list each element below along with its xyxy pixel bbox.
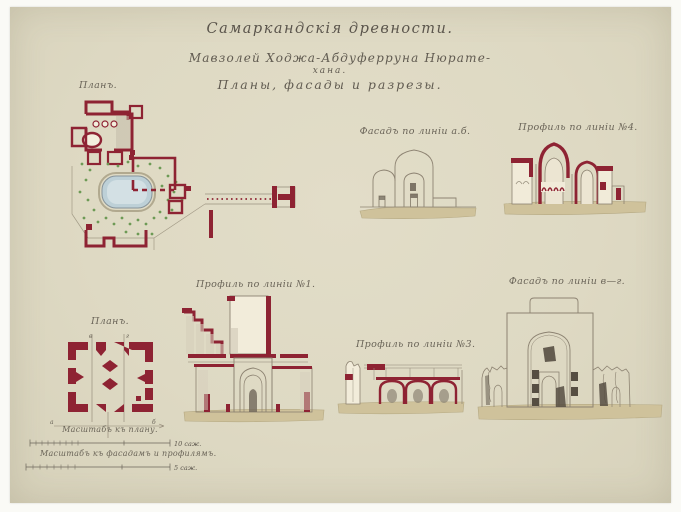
door-shadow (411, 194, 418, 198)
section-mark-v: в (89, 333, 93, 340)
section-mark-g: г (126, 333, 129, 340)
mausoleum-facade (360, 150, 476, 207)
site-plan-drawing (42, 88, 304, 253)
annex-dome-outline (373, 170, 395, 207)
baseline-mark-a: а (50, 419, 54, 426)
page-title: Самаркандскія древности. (190, 22, 470, 37)
door-opening (249, 389, 257, 412)
ground-band (360, 207, 476, 219)
facade-vg-caption: Фасадъ по линіи в—г. (502, 277, 632, 287)
mausoleum-complex-plan (72, 102, 142, 164)
corridor-plan (205, 194, 272, 204)
elevation-scale-unit: 5 саж. (174, 464, 197, 472)
page-subtitle: Мавзолей Ходжа-Абдуферруна Нюрате- (170, 52, 510, 64)
profile-4-caption: Профиль по линіи №4. (508, 123, 648, 133)
elevation-scale-caption: Масштабъ къ фасадамъ и профилямъ. (40, 450, 190, 458)
facade-vg-drawing (476, 288, 666, 426)
arcade-section (345, 362, 462, 405)
profile-1-drawing (180, 282, 330, 424)
plan-scale-bar: 10 саж. (28, 436, 203, 450)
small-plan-caption: Планъ. (70, 317, 150, 327)
plan-scale-caption: Масштабъ къ плану. (55, 426, 165, 434)
niche-window (410, 183, 416, 191)
profile-3-caption: Профиль по линіи №3. (356, 340, 468, 350)
right-ruin-wall (593, 366, 630, 407)
far-gate-plan (272, 186, 295, 208)
profile-3-drawing (334, 352, 470, 422)
lower-building-plan (86, 210, 213, 246)
portal-section (182, 296, 312, 412)
main-dome-outline (395, 150, 433, 207)
scanned-page: Самаркандскія древности. Мавзолей Ходжа-… (0, 0, 681, 512)
facade-ab-drawing (348, 136, 482, 226)
page-subtitle-continuation: хана. (250, 67, 410, 76)
section-cut (511, 144, 624, 204)
pond (99, 173, 155, 211)
mausoleum-small-plan (68, 342, 153, 412)
profile-4-drawing (496, 134, 656, 230)
parapet (530, 298, 578, 313)
side-wall-line (433, 198, 456, 207)
elevation-scale-bar: 5 саж. (24, 460, 199, 474)
arch-band (376, 377, 460, 380)
plan-scale-unit: 10 саж. (174, 440, 201, 448)
pylon-cut-wall (266, 296, 271, 354)
door-arch (542, 376, 556, 407)
